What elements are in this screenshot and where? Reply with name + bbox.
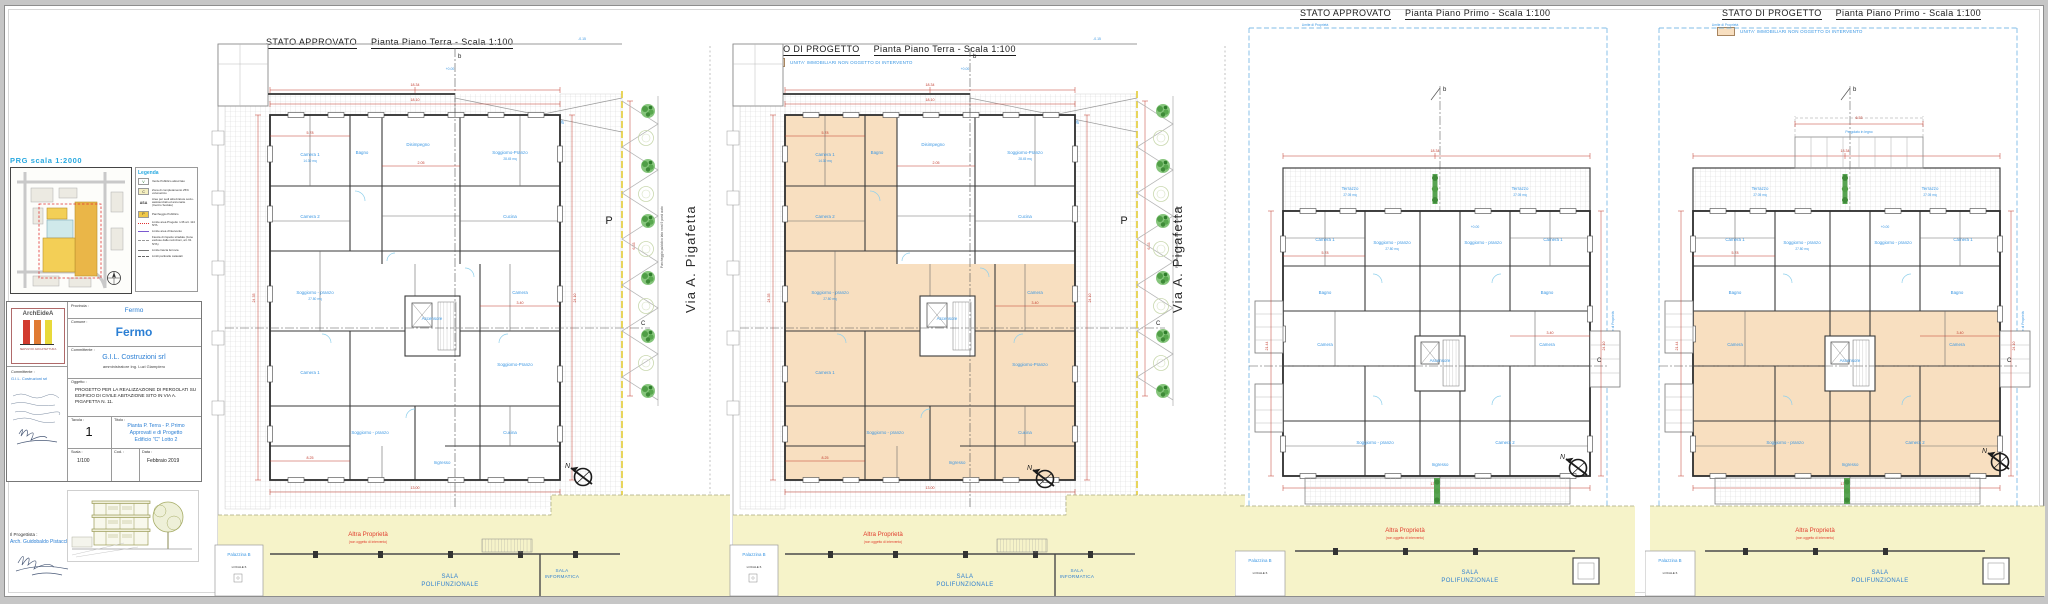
titolo-line2: Approvati e di Progetto: [111, 430, 201, 436]
titolo-line1: Pianta P. Terra - P. Primo: [111, 423, 201, 429]
building-render: [67, 490, 199, 562]
prg-map: [10, 167, 132, 294]
legend-item: VVerde Pubblico attrezzato: [138, 178, 195, 185]
pergolato-label: Pergolato in legno: [1845, 130, 1872, 134]
title-block: ArchEideA SERVIZI DI ARCHITETTURA Commit…: [6, 301, 202, 482]
logo-subtitle: SERVIZI DI ARCHITETTURA: [12, 347, 64, 351]
committente-sub: amministratore Ing. Luzi Giampiero: [67, 364, 201, 369]
legenda-title: Legenda: [138, 170, 195, 176]
plan-stato-approvato-primo: [1235, 6, 1635, 596]
logo: ArchEideA SERVIZI DI ARCHITETTURA: [11, 308, 65, 364]
prg-map-title: PRG scala 1:2000: [10, 156, 82, 165]
street-label-via-pigafetta: Via A. Pigafetta: [1170, 162, 1188, 357]
progettista-name: Arch. Guidobaldo Pistacchini: [10, 539, 74, 545]
legenda: Legenda VVerde Pubblico attrezzato CZona…: [135, 167, 198, 292]
legend-item: Limite area Progetto n.36 art. 114 NTA: [138, 221, 195, 227]
provincia-value: Fermo: [67, 307, 201, 314]
tavola-label: Tavola :: [71, 418, 84, 422]
progettista-label: Il Progettista :: [10, 532, 38, 537]
render-building: [92, 501, 150, 545]
legend-item: PParcheggio Pubblico: [138, 211, 195, 218]
cod-label: Cod. :: [114, 450, 124, 454]
data-value: Febbraio 2019: [147, 458, 179, 464]
legend-item: ASAAree per sedi attrezzature socio-assi…: [138, 198, 195, 207]
legend-item: Limite area d'intervento: [138, 230, 195, 233]
street-label-via-pigafetta: Via A. Pigafetta: [683, 162, 701, 357]
plan-stato-di-progetto-terra: [725, 6, 1245, 596]
tavola-value: 1: [67, 424, 111, 439]
pergola-overlay: 6.53 Pergolato in legno: [1795, 116, 1923, 168]
committente-label: Committente :: [71, 348, 95, 352]
oggetto-value: PROGETTO PER LA REALIZZAZIONE DI PERGOLA…: [75, 387, 197, 405]
logo-bars: [20, 320, 54, 345]
scala-label: Scala :: [71, 450, 83, 454]
map-parcel-cyan: [47, 220, 73, 238]
committente-side-value: G.I.L. Costruzioni srl: [11, 376, 65, 381]
oggetto-label: Oggetto :: [71, 380, 87, 384]
data-label: Data :: [142, 450, 152, 454]
titolo-line3: Edificio "C" Lotto 2: [111, 437, 201, 443]
legend-item: CZona di completamento 25% volumetrico: [138, 188, 195, 195]
comune-label: Comune :: [71, 320, 87, 324]
committente-signature: [9, 386, 65, 456]
plan-stato-di-progetto-primo: 6.53 Pergolato in legno: [1645, 6, 2045, 596]
legend-item: Limiti particelle catastali: [138, 255, 195, 258]
scala-value: 1/100: [77, 458, 90, 464]
titolo-label: Titolo :: [114, 418, 125, 422]
legend-item: Limite fascia ferrovia: [138, 249, 195, 252]
svg-text:6.53: 6.53: [1856, 116, 1863, 120]
committente-value: G.I.L. Costruzioni srl: [67, 354, 201, 361]
map-parcel-yellow: [43, 238, 75, 272]
render-tree: [153, 502, 183, 549]
logo-text: ArchEideA: [12, 311, 64, 317]
comune-value: Fermo: [67, 325, 201, 339]
plan-stato-approvato-terra: [210, 6, 730, 596]
committente-side-label: Committente :: [11, 370, 35, 374]
legend-item: Fascia di rispetto stradale (zone esclus…: [138, 236, 195, 245]
map-compass-icon: [108, 272, 121, 285]
map-parcel-orange: [75, 202, 97, 276]
